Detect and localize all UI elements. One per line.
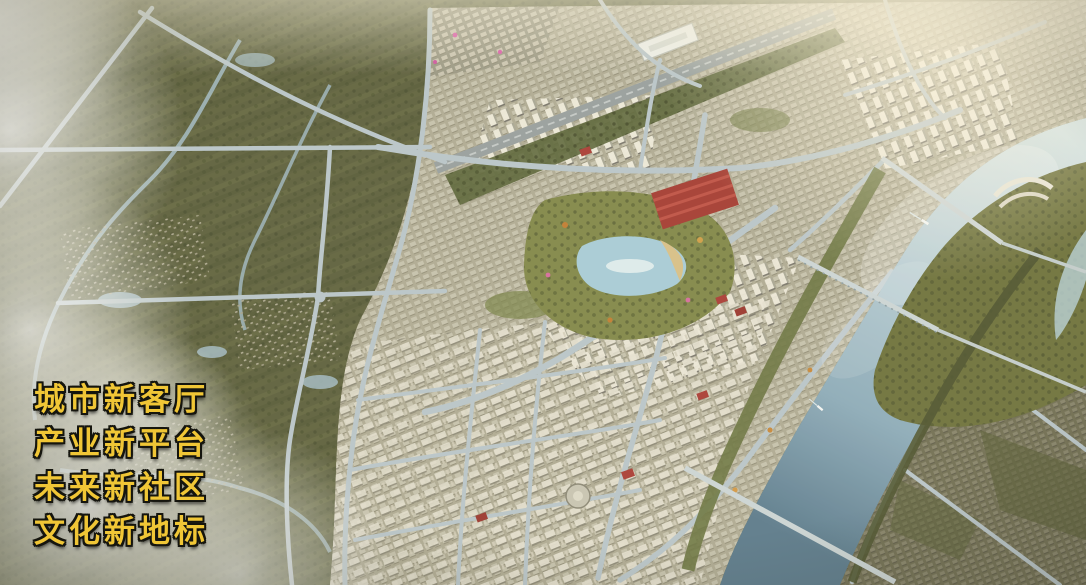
rendering-scene [0,0,1086,585]
aerial-city-rendering: 城市新客厅 产业新平台 未来新社区 文化新地标 [0,0,1086,585]
warm-tint [0,0,1086,585]
atmosphere [0,0,1086,585]
